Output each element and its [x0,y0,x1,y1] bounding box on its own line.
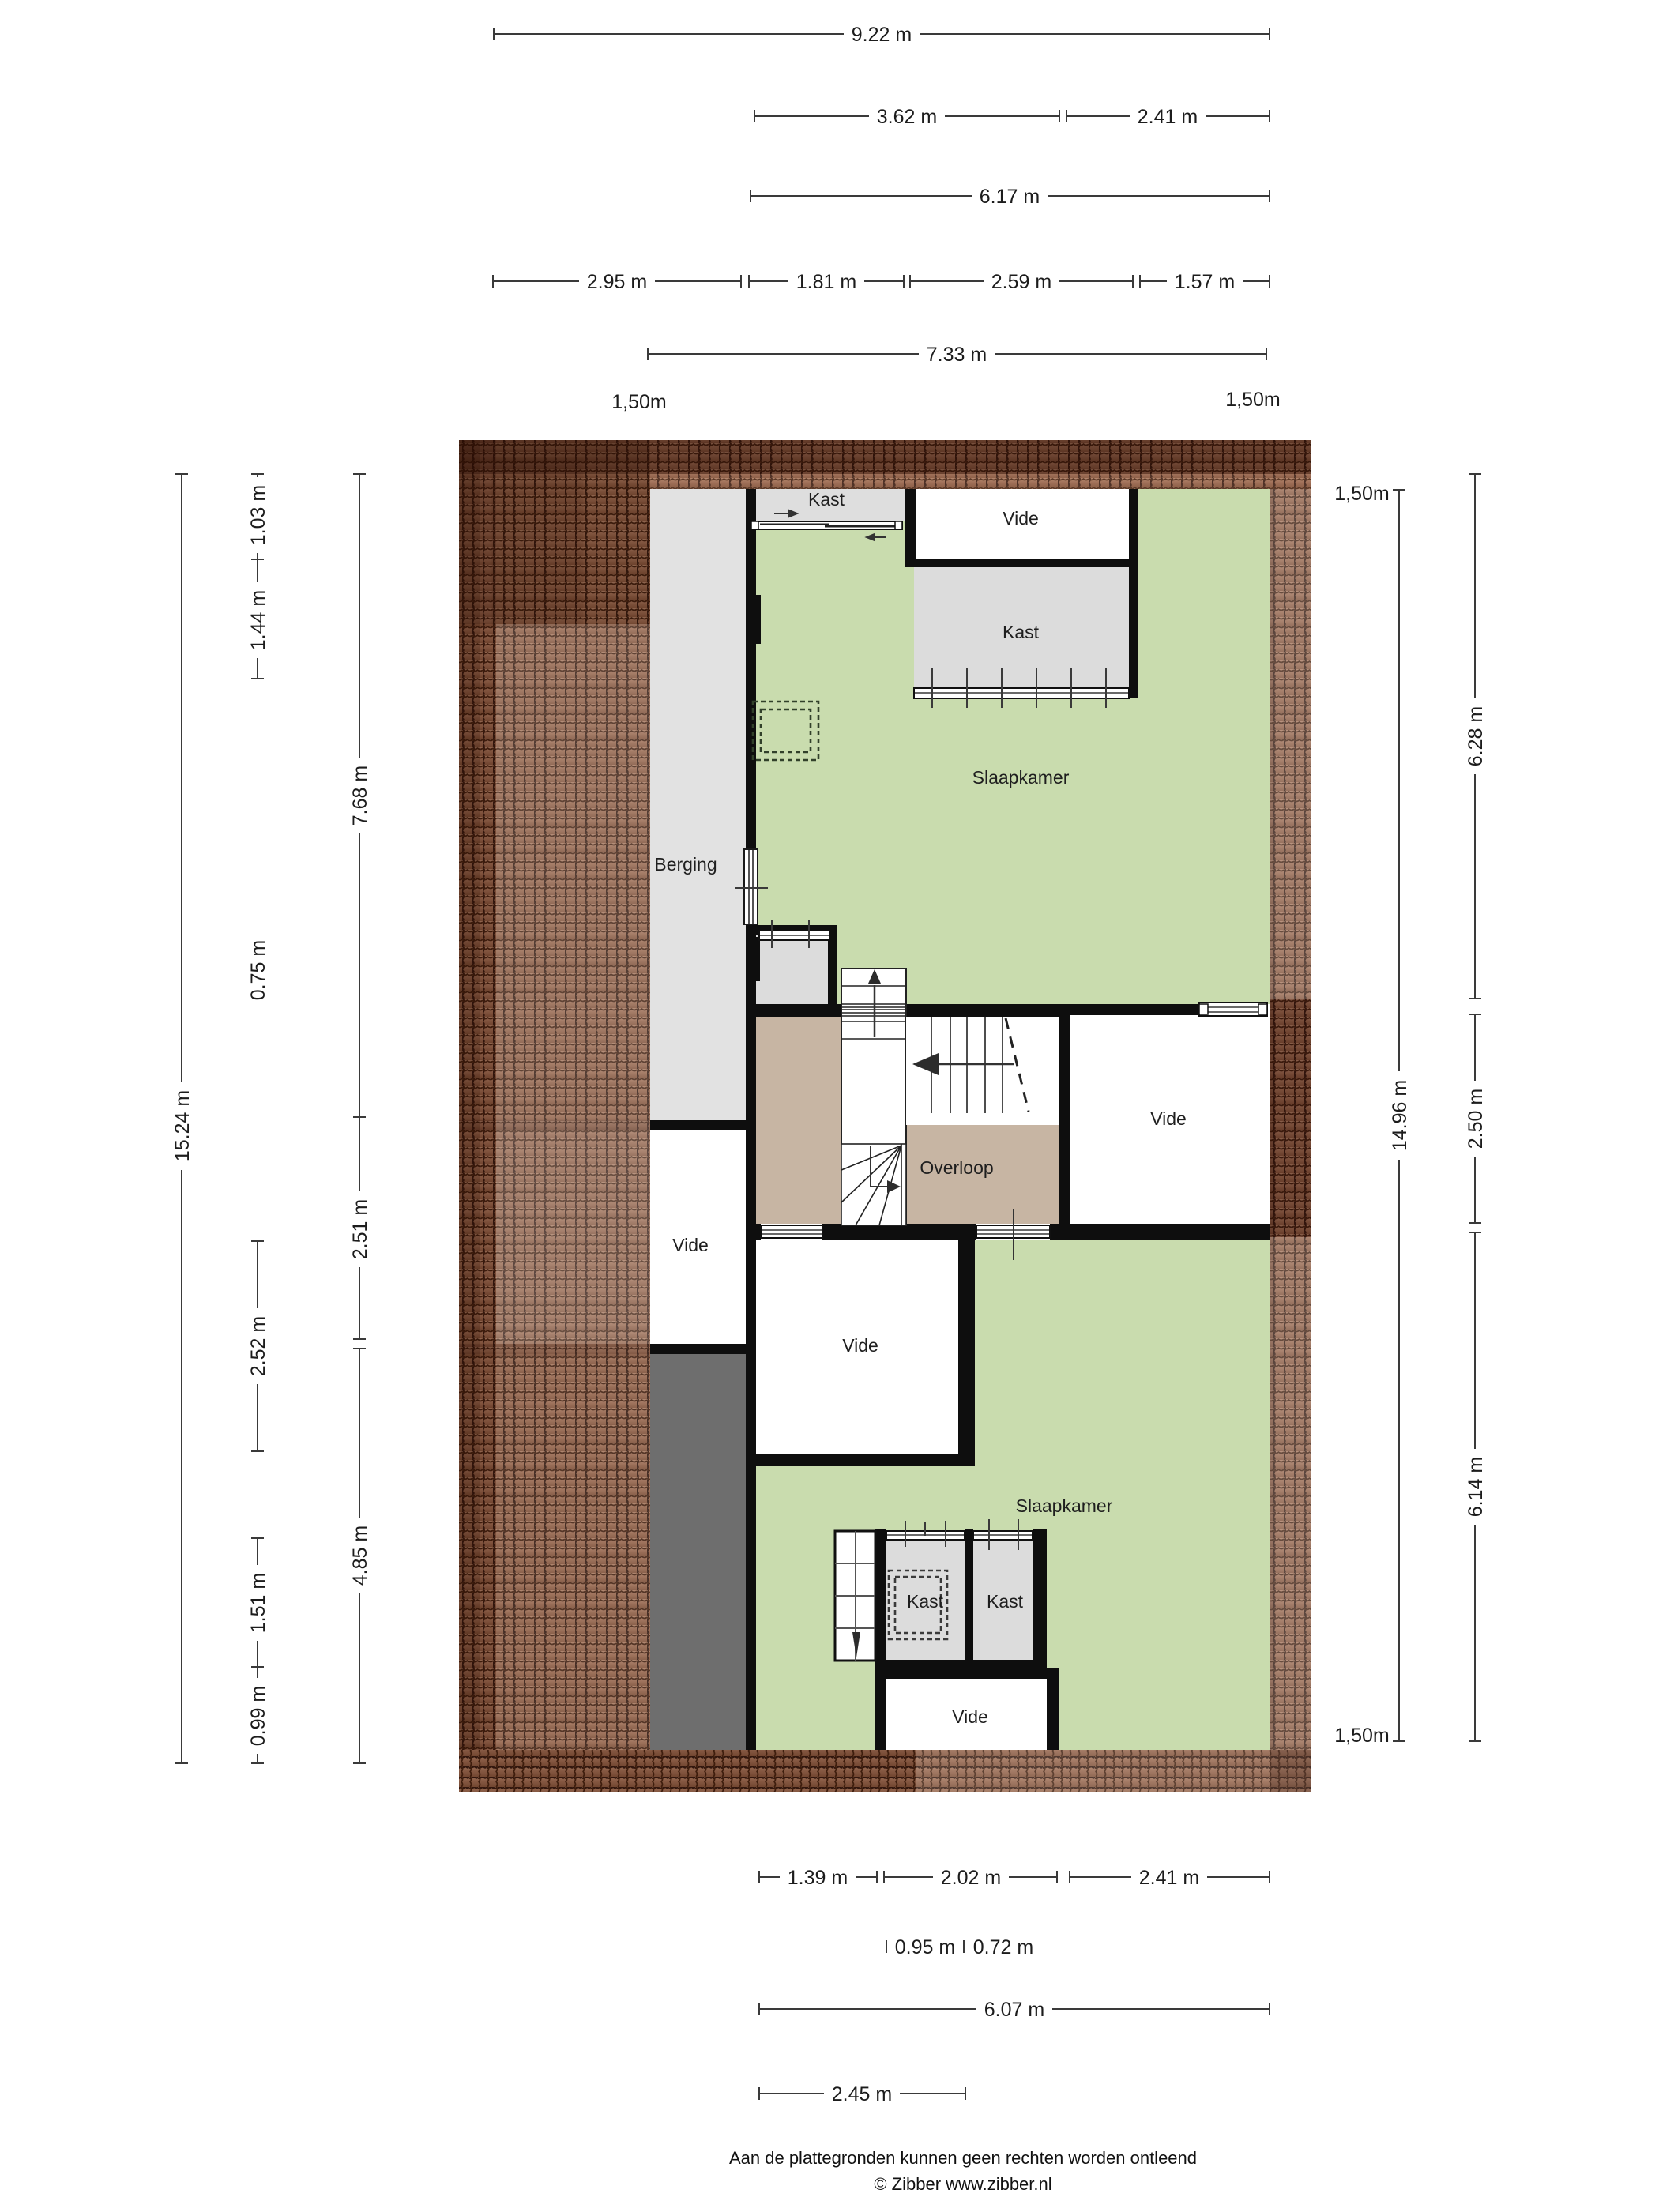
svg-text:0.72 m: 0.72 m [973,1936,1033,1958]
svg-text:1.03 m: 1.03 m [247,485,269,545]
svg-text:7.33 m: 7.33 m [927,344,987,366]
svg-text:© Zibber www.zibber.nl: © Zibber www.zibber.nl [874,2174,1051,2194]
svg-text:1,50m: 1,50m [611,391,666,413]
svg-text:2.52 m: 2.52 m [247,1316,269,1376]
svg-text:1,50m: 1,50m [1334,1725,1389,1747]
svg-text:1.44 m: 1.44 m [247,590,269,650]
svg-text:Kast: Kast [907,1591,944,1612]
svg-text:0.75 m: 0.75 m [247,940,269,1000]
svg-text:Kast: Kast [808,489,845,510]
svg-text:0.95 m: 0.95 m [895,1936,955,1958]
svg-text:Kast: Kast [1003,622,1040,642]
svg-text:2.51 m: 2.51 m [349,1199,371,1259]
svg-text:6.28 m: 6.28 m [1465,706,1487,766]
svg-text:Vide: Vide [1150,1108,1187,1129]
svg-text:15.24 m: 15.24 m [171,1090,194,1161]
svg-text:1.81 m: 1.81 m [796,271,856,293]
svg-text:2.45 m: 2.45 m [832,2083,892,2105]
svg-text:Vide: Vide [952,1706,988,1727]
svg-text:1.51 m: 1.51 m [247,1573,269,1633]
svg-text:Overloop: Overloop [920,1157,993,1178]
svg-text:2.02 m: 2.02 m [941,1867,1001,1889]
svg-text:Berging: Berging [654,854,717,875]
svg-text:Kast: Kast [987,1591,1024,1612]
svg-text:2.59 m: 2.59 m [991,271,1051,293]
svg-text:2.41 m: 2.41 m [1138,106,1198,128]
svg-text:1,50m: 1,50m [1225,389,1280,411]
svg-text:2.50 m: 2.50 m [1465,1089,1487,1149]
svg-text:2.95 m: 2.95 m [587,271,647,293]
svg-text:1,50m: 1,50m [1334,483,1389,505]
svg-text:6.14 m: 6.14 m [1465,1457,1487,1517]
svg-text:3.62 m: 3.62 m [877,106,937,128]
svg-text:Vide: Vide [672,1235,709,1255]
svg-text:14.96 m: 14.96 m [1389,1080,1411,1151]
svg-text:4.85 m: 4.85 m [349,1525,371,1586]
svg-text:0.99 m: 0.99 m [247,1686,269,1746]
svg-text:6.17 m: 6.17 m [980,186,1040,208]
svg-text:9.22 m: 9.22 m [852,24,912,46]
svg-text:Vide: Vide [842,1335,878,1356]
svg-text:7.68 m: 7.68 m [349,766,371,826]
svg-text:Slaapkamer: Slaapkamer [1016,1495,1113,1516]
svg-text:2.41 m: 2.41 m [1139,1867,1199,1889]
svg-text:6.07 m: 6.07 m [984,1999,1044,2021]
svg-text:Slaapkamer: Slaapkamer [972,767,1070,788]
svg-text:1.57 m: 1.57 m [1175,271,1235,293]
svg-text:Vide: Vide [1003,508,1039,529]
svg-text:1.39 m: 1.39 m [788,1867,848,1889]
svg-text:Aan de plattegronden kunnen ge: Aan de plattegronden kunnen geen rechten… [729,2148,1197,2168]
